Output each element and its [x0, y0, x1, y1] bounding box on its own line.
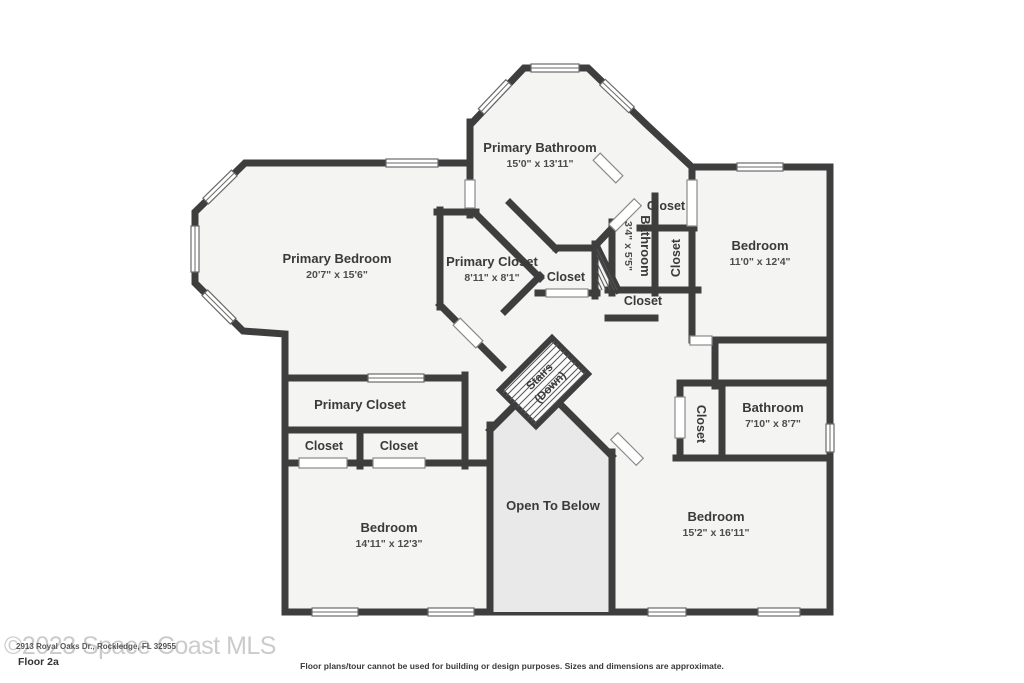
room-label-primary-closet-upper: Primary Closet: [446, 254, 538, 269]
door-opening: [465, 180, 475, 208]
room-dims-bedroom-right: 11'0" x 12'4": [729, 256, 790, 268]
window: [826, 424, 834, 452]
room-label-closet-a: Closet: [305, 439, 344, 453]
room-label-primary-bathroom: Primary Bathroom: [483, 140, 596, 155]
room-dims-bedroom-bottom-left: 14'11" x 12'3": [356, 538, 423, 550]
window: [758, 608, 800, 616]
room-label-bedroom-bottom-left: Bedroom: [360, 520, 417, 535]
room-label-bedroom-bottom-right: Bedroom: [687, 509, 744, 524]
door-opening: [299, 458, 347, 468]
room-dims-bedroom-bottom-right: 15'2" x 16'11": [683, 527, 750, 539]
address-text: 2913 Royal Oaks Dr., Rockledge, FL 32955: [16, 642, 176, 651]
window: [386, 159, 438, 167]
room-dims-bathroom-small: 3'4" x 5'5": [622, 221, 634, 271]
floorplan-svg: Primary Bathroom 15'0" x 13'11" Primary …: [0, 0, 1024, 683]
door-opening: [373, 458, 425, 468]
room-label-closet-mid: Closet: [624, 294, 663, 308]
room-label-primary-bedroom: Primary Bedroom: [282, 251, 391, 266]
room-dims-bathroom-right: 7'10" x 8'7": [745, 418, 801, 430]
door-opening: [687, 180, 697, 226]
door-opening: [546, 289, 588, 297]
room-label-closet-center: Closet: [547, 270, 586, 284]
window: [648, 608, 686, 616]
window: [368, 374, 424, 382]
room-label-bathroom-small: Bathroom: [638, 215, 653, 276]
room-label-primary-closet-lower: Primary Closet: [314, 397, 406, 412]
room-label-closet-b: Closet: [380, 439, 419, 453]
room-label-open-to-below: Open To Below: [506, 498, 601, 513]
window: [312, 608, 358, 616]
room-label-bathroom-right: Bathroom: [742, 400, 803, 415]
window: [428, 608, 474, 616]
window: [737, 163, 783, 171]
room-dims-primary-bathroom: 15'0" x 13'11": [507, 158, 574, 170]
floorplan-page: Primary Bathroom 15'0" x 13'11" Primary …: [0, 0, 1024, 683]
door-opening: [690, 336, 712, 345]
door-opening: [675, 397, 685, 438]
room-label-bedroom-right: Bedroom: [731, 238, 788, 253]
room-label-closet-top: Closet: [647, 199, 686, 213]
disclaimer-text: Floor plans/tour cannot be used for buil…: [0, 661, 1024, 671]
room-dims-primary-bedroom: 20'7" x 15'6": [306, 269, 368, 281]
window: [531, 64, 579, 72]
window: [191, 226, 199, 272]
room-label-closet-vertical: Closet: [669, 238, 683, 277]
room-label-closet-bath: Closet: [694, 405, 708, 444]
room-dims-primary-closet-upper: 8'11" x 8'1": [464, 272, 519, 284]
